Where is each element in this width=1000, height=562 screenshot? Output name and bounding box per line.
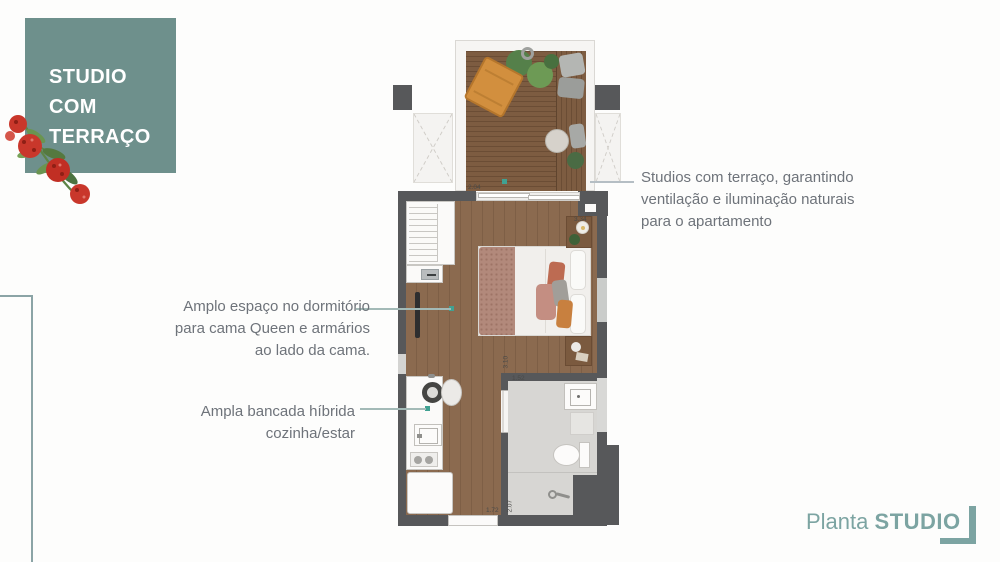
counter-stool — [441, 379, 462, 406]
dimension-bedroom-width: 3.34 — [574, 216, 587, 223]
pillow-white-2 — [570, 294, 586, 334]
window-gap-right-1 — [597, 278, 607, 322]
bathroom-sink — [564, 383, 597, 410]
nightstand-bottom — [565, 336, 592, 366]
annotation-kitchen-line-2: cozinha/estar — [140, 423, 355, 445]
counter-small-icon — [428, 374, 435, 378]
terrace-right-wall-stub — [593, 85, 620, 110]
terrace-floor-plant — [567, 152, 584, 169]
dimension-bathroom-length: 2.07 — [507, 495, 514, 513]
floor-plan: 2.04 3.34 3.10 1.52 2.07 1.72 — [0, 0, 1000, 562]
dimension-terrace-width: 2.04 — [468, 184, 481, 191]
annotation-terrace: Studios com terraço, garantindo ventilaç… — [641, 167, 891, 233]
dimension-entry-width: 1.72 — [486, 507, 499, 514]
annotation-kitchen: Ampla bancada híbrida cozinha/estar — [140, 401, 355, 445]
toilet-bowl — [553, 444, 580, 466]
leader-line-bedroom — [356, 308, 451, 310]
hatch-panel-right — [595, 113, 621, 183]
outdoor-cushion-2 — [557, 77, 585, 100]
hatch-panel-left — [413, 113, 453, 183]
counter-appliance-ring — [422, 382, 443, 403]
outdoor-table — [545, 129, 569, 153]
outdoor-cushion-1 — [558, 52, 585, 78]
bed-throw — [479, 247, 515, 335]
tv-panel — [415, 292, 420, 338]
footer-label-bold: STUDIO — [875, 509, 961, 534]
annotation-terrace-line-2: ventilação e iluminação naturais — [641, 189, 891, 211]
annotation-bedroom-line-3: ao lado da cama. — [140, 340, 370, 362]
footer-label: Planta STUDIO — [806, 509, 961, 535]
pillow-white-1 — [570, 250, 586, 290]
annotation-kitchen-line-1: Ampla bancada híbrida — [140, 401, 355, 423]
wardrobe — [406, 201, 455, 265]
leader-line-terrace — [590, 181, 634, 183]
leader-line-kitchen — [360, 408, 426, 410]
bathroom-door-opening — [501, 390, 508, 433]
terrace-plant-3 — [544, 54, 559, 69]
annotation-terrace-line-3: para o apartamento — [641, 211, 891, 233]
wall-top-left — [398, 191, 476, 201]
bathroom-shelf — [570, 412, 594, 435]
sliding-door — [476, 192, 580, 201]
window-box — [583, 202, 598, 214]
outdoor-side-chair — [568, 123, 586, 149]
footer-corner-bracket-horizontal — [940, 538, 976, 544]
pillow-orange — [556, 299, 573, 328]
nightstand-plant — [569, 234, 580, 245]
hatch-x-left — [414, 114, 452, 182]
kitchen-sink — [414, 424, 442, 446]
fridge — [407, 472, 453, 514]
marker-dot-terrace — [502, 179, 507, 184]
annotation-bedroom: Amplo espaço no dormitório para cama Que… — [140, 296, 370, 362]
appliance-shelf — [406, 265, 443, 283]
watering-can-icon — [521, 47, 534, 60]
shower-divider-line — [508, 472, 597, 473]
slide: STUDIO COM TERRAÇO — [0, 0, 1000, 562]
annotation-bedroom-line-1: Amplo espaço no dormitório — [140, 296, 370, 318]
window-gap-right-2 — [597, 378, 607, 432]
dimension-bathroom-width: 1.52 — [512, 375, 525, 382]
entry-door-opening — [448, 515, 498, 526]
annotation-terrace-line-1: Studios com terraço, garantindo — [641, 167, 891, 189]
wall-corner-block-right — [597, 445, 619, 525]
bathroom-corner-block — [573, 475, 597, 516]
cooktop — [410, 452, 438, 467]
footer-label-regular: Planta — [806, 509, 868, 534]
toilet-tank — [579, 442, 590, 468]
window-gap-left — [398, 354, 406, 374]
annotation-bedroom-line-2: para cama Queen e armários — [140, 318, 370, 340]
terrace-left-wall-stub — [393, 85, 412, 110]
dimension-bedroom-length: 3.10 — [503, 351, 510, 369]
hatch-x-right — [596, 114, 620, 182]
